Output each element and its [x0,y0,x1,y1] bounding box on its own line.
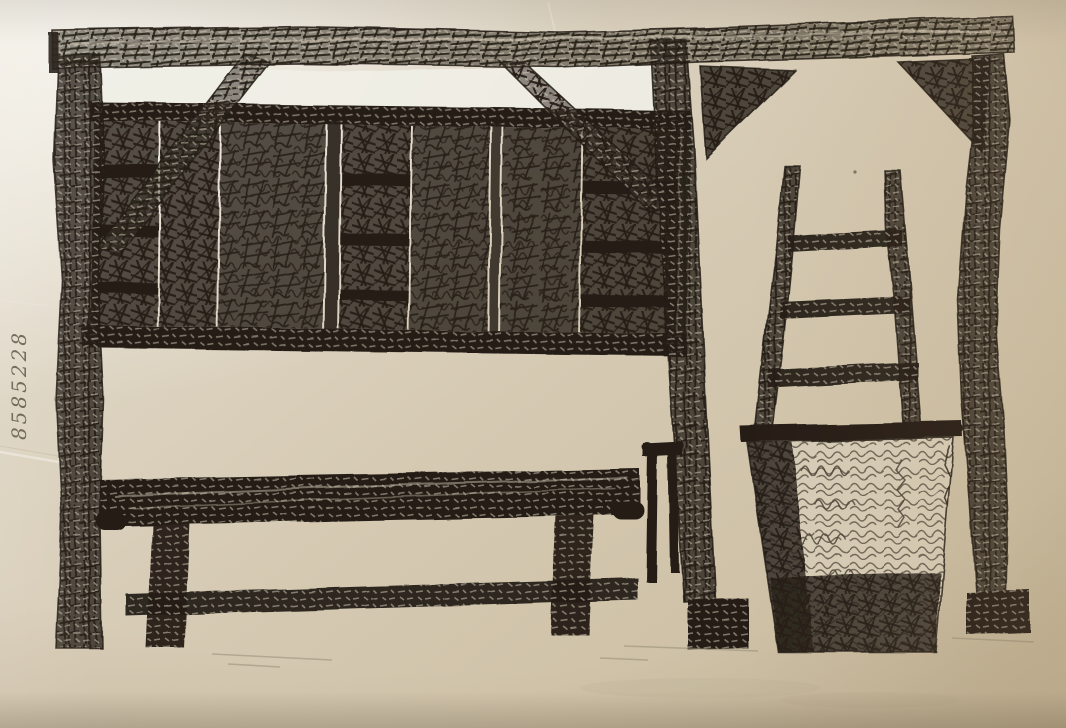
bench-leg [550,514,594,634]
artwork-photo: 8585228 [0,0,1066,728]
wall-panel-hay [501,127,582,333]
wall-panel-hay [219,123,326,329]
ink-drawing [0,0,1066,728]
wall-panel-hay [410,125,491,331]
left-post [54,54,104,648]
artist-inscription: 8585228 [7,310,33,460]
wall-panel-shelves [340,124,411,330]
basket [740,421,964,652]
bench-leg [146,522,190,648]
